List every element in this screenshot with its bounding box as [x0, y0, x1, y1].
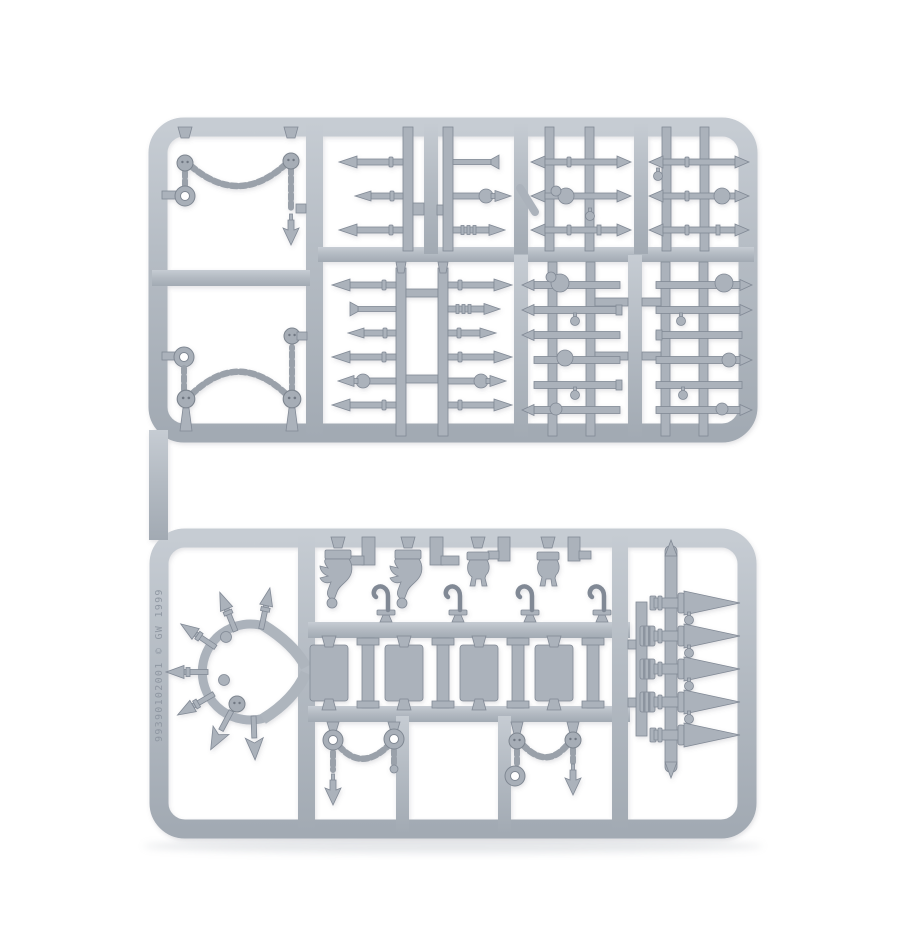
spiked-crescent-ornament [166, 587, 306, 761]
beast-head-standards [320, 537, 591, 608]
chain-garland-arched [162, 328, 307, 431]
decorated-shaft-ladder-right [642, 262, 752, 436]
molded-part-code: 99390102001 © GW 1999 [154, 588, 165, 742]
sprue-photo: 99390102001 © GW 1999 [0, 0, 918, 948]
decorated-shaft-ladder-left [522, 262, 628, 436]
spear-tip-group-short-right [437, 127, 511, 251]
s-hooks [374, 586, 611, 622]
spear-tip-group-long-right [438, 262, 512, 436]
double-spear-group-right [649, 127, 749, 251]
conical-spike-column [628, 540, 740, 778]
double-spear-group-left [520, 127, 631, 251]
hanging-chain-left [323, 722, 404, 805]
sprue-scene: 99390102001 © GW 1999 [0, 0, 918, 948]
hanging-chain-right [505, 722, 581, 795]
chain-garland-draped [162, 127, 306, 245]
floor-shadow [143, 839, 763, 853]
plates-and-posts [310, 636, 604, 710]
spear-tip-group-short-left [339, 127, 424, 251]
spear-tip-group-long-left [332, 262, 438, 436]
